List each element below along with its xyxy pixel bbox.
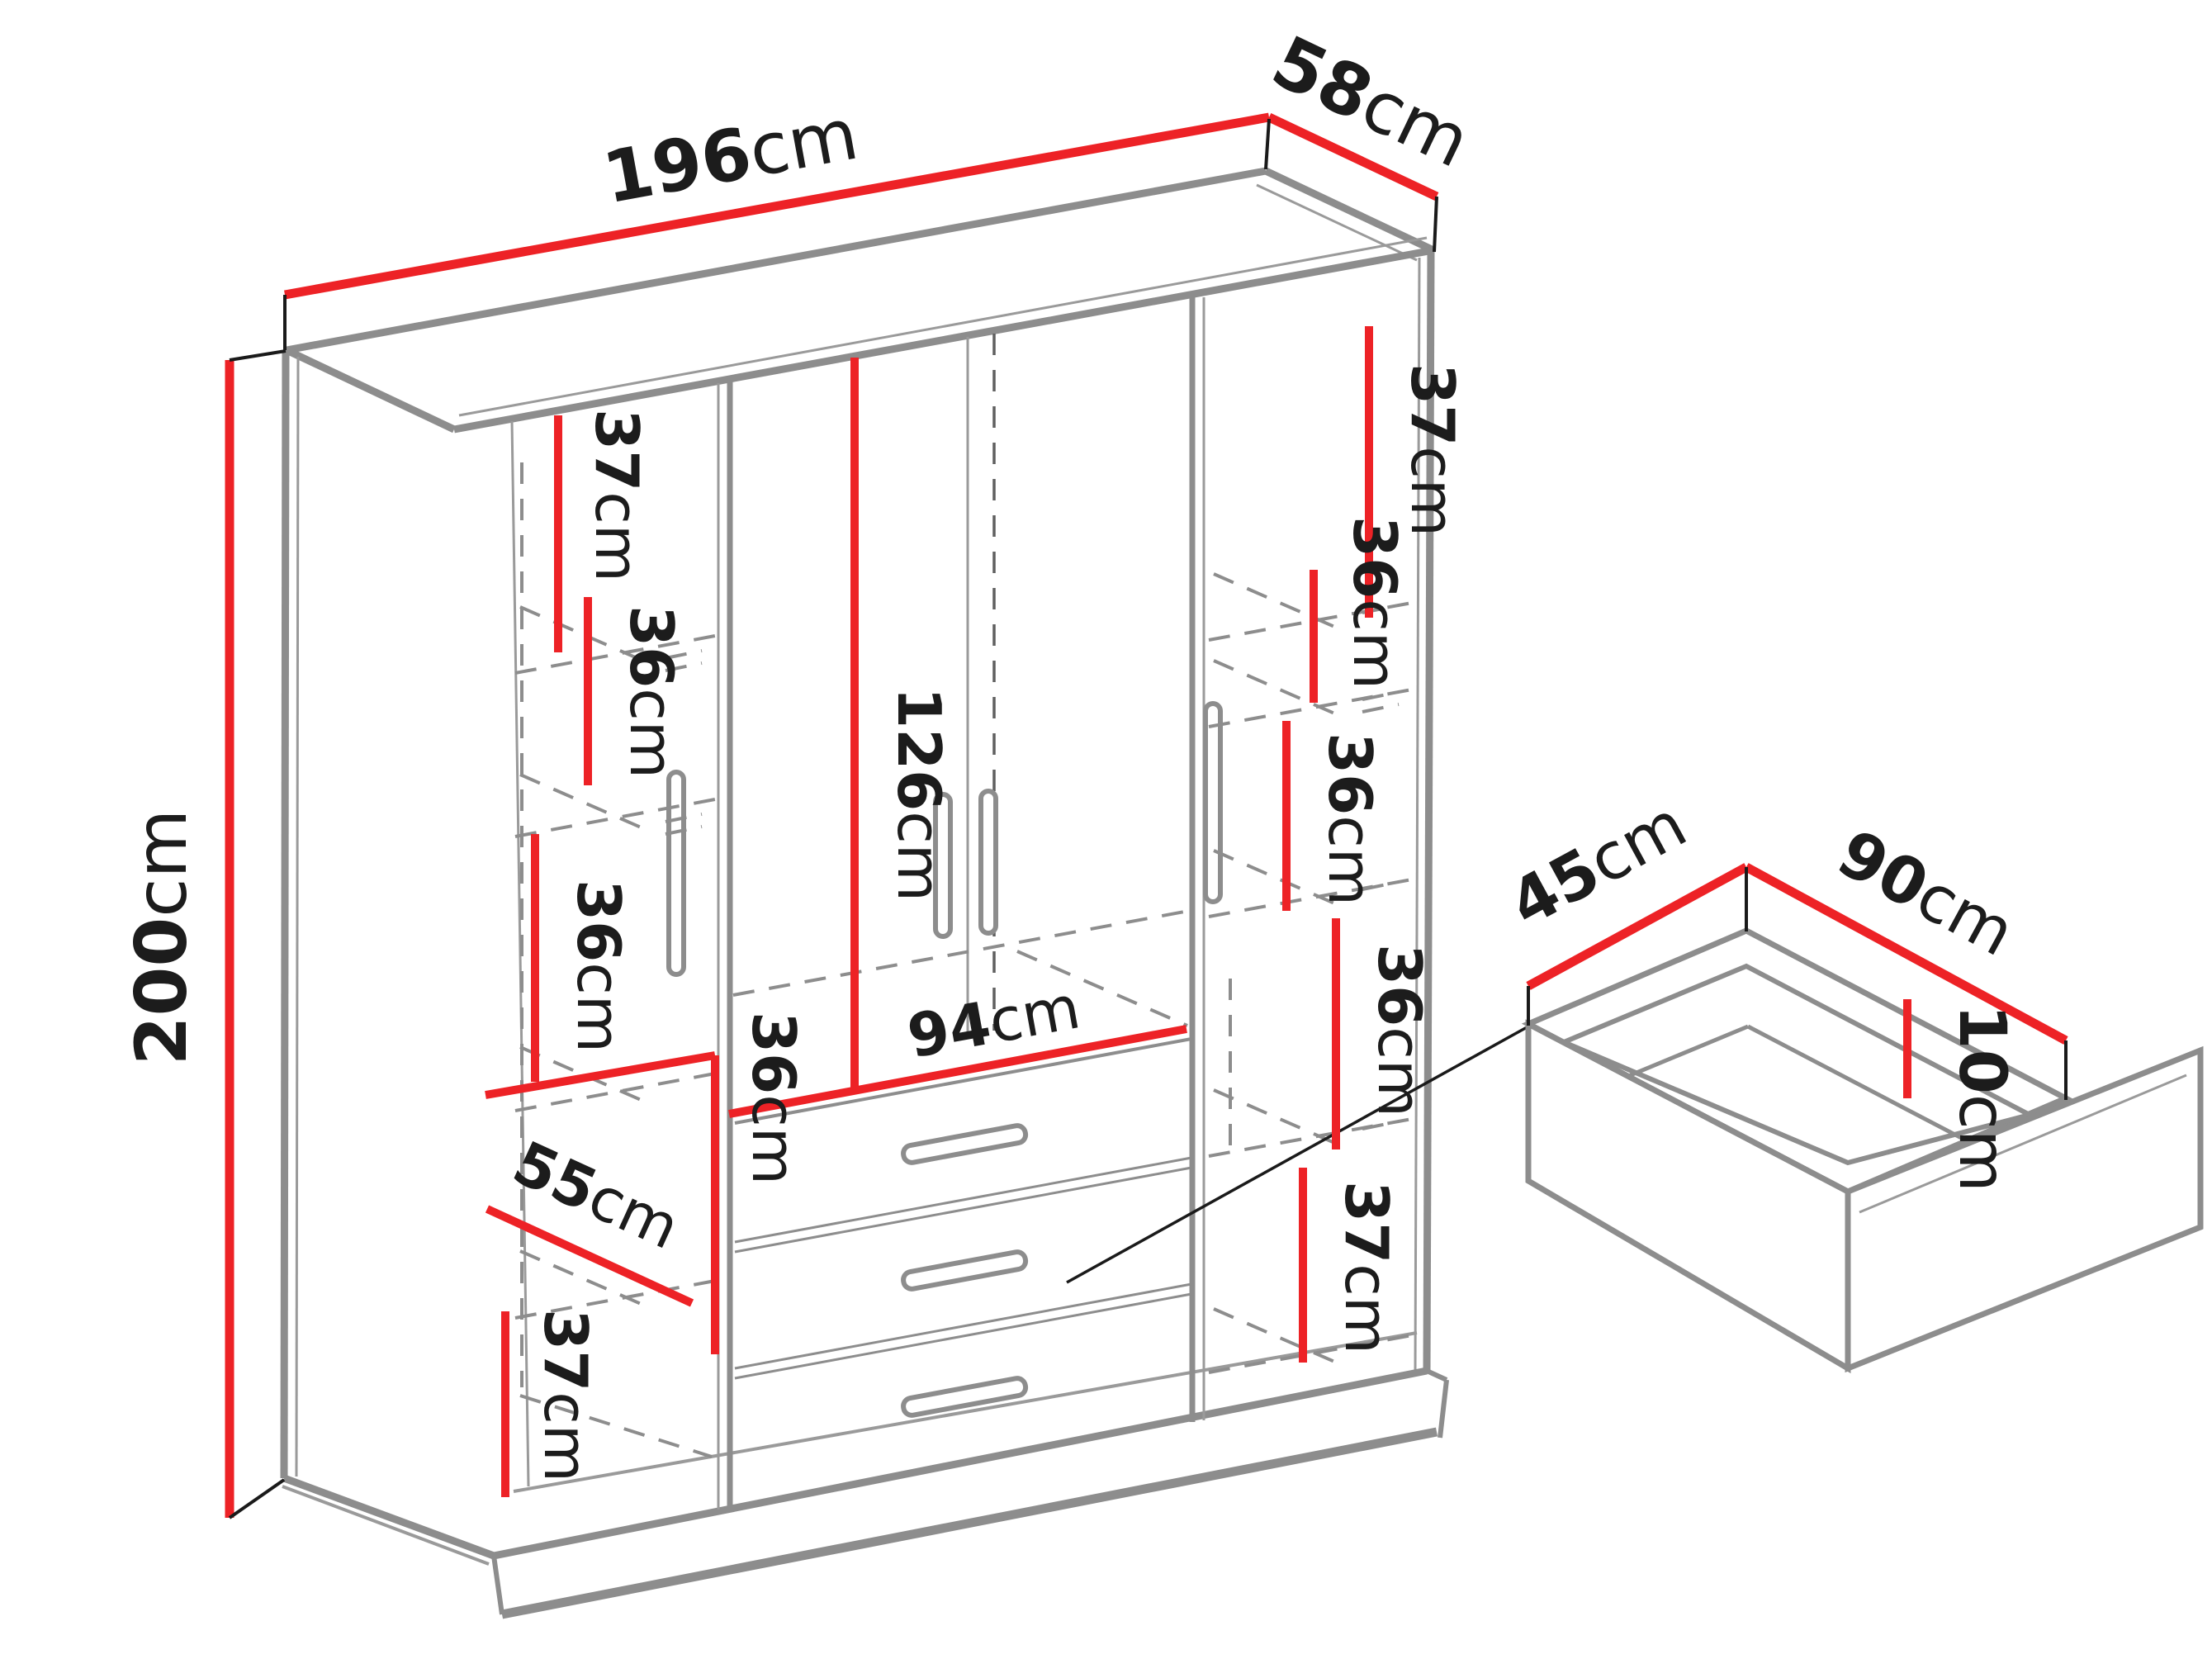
shelf-depth-line: [1214, 574, 1346, 632]
wardrobe-carcass: [282, 171, 1447, 1614]
shelf-tick: [1362, 704, 1399, 712]
label-right-shelf-3: 36cm: [1315, 732, 1385, 906]
label-height: 200cm: [121, 809, 203, 1066]
label-drawer-height: 10cm: [1944, 1004, 2019, 1192]
drawer-leader-line: [1067, 1026, 1528, 1282]
right-door-handle: [1205, 704, 1220, 902]
label-right-shelf-2: 36cm: [1340, 516, 1409, 690]
top-front-edge: [454, 250, 1433, 429]
left-back-edge: [284, 350, 286, 1478]
drawer-divider: [735, 1294, 1191, 1378]
label-left-shelf-width: 55cm: [503, 1128, 689, 1263]
label-depth: 58cm: [1260, 21, 1482, 184]
extension-line: [1266, 119, 1269, 169]
label-left-shelf-3: 36cm: [564, 879, 633, 1053]
side-panel: [284, 350, 494, 1556]
center-right-door-handle: [981, 791, 996, 933]
extension-line: [230, 351, 286, 360]
drawer-divider: [735, 1284, 1191, 1368]
interior-floor-edge: [514, 1333, 1417, 1491]
label-left-shelf-2: 36cm: [617, 605, 686, 779]
top-back-edge: [287, 171, 1266, 350]
label-right-top-shelf: 37cm: [1398, 363, 1467, 537]
drawer-handle: [902, 1250, 1026, 1290]
label-left-bottom-shelf: 37cm: [531, 1309, 600, 1482]
left-back-inner-edge: [296, 357, 298, 1477]
wardrobe-dimension-diagram: 196cm 58cm 200cm 37cm 36cm 36cm 36cm 55c…: [0, 0, 2212, 1659]
extension-line: [1434, 197, 1437, 252]
top-right-inner-edge: [1257, 185, 1417, 260]
shelf-depth-line: [1214, 661, 1346, 718]
plinth-right-step-top: [1427, 1371, 1447, 1380]
left-door-handle: [669, 772, 684, 974]
drawer-detail: [1528, 931, 2200, 1368]
shelf-front-line: [515, 1074, 715, 1111]
label-right-bottom-shelf: 37cm: [1332, 1181, 1401, 1354]
top-front-inner-edge: [459, 238, 1427, 415]
drawer-handle: [902, 1124, 1026, 1164]
label-drawer-depth: 45cm: [1498, 787, 1698, 942]
diagram-svg: 196cm 58cm 200cm 37cm 36cm 36cm 36cm 55c…: [0, 0, 2212, 1659]
label-right-shelf-4: 36cm: [1365, 944, 1434, 1117]
dim-line-shelf-corner: [486, 1055, 715, 1095]
plinth-right-step-side: [1440, 1380, 1447, 1438]
label-left-top-shelf: 37cm: [582, 409, 651, 582]
label-center-door-height: 126cm: [884, 687, 954, 902]
shelf-front-line: [733, 911, 1189, 995]
extension-line: [230, 1480, 284, 1518]
plinth-left-edge: [494, 1556, 502, 1614]
label-drawer-width: 90cm: [1826, 816, 2026, 971]
label-left-lower-shelf: 36cm: [739, 1012, 808, 1185]
